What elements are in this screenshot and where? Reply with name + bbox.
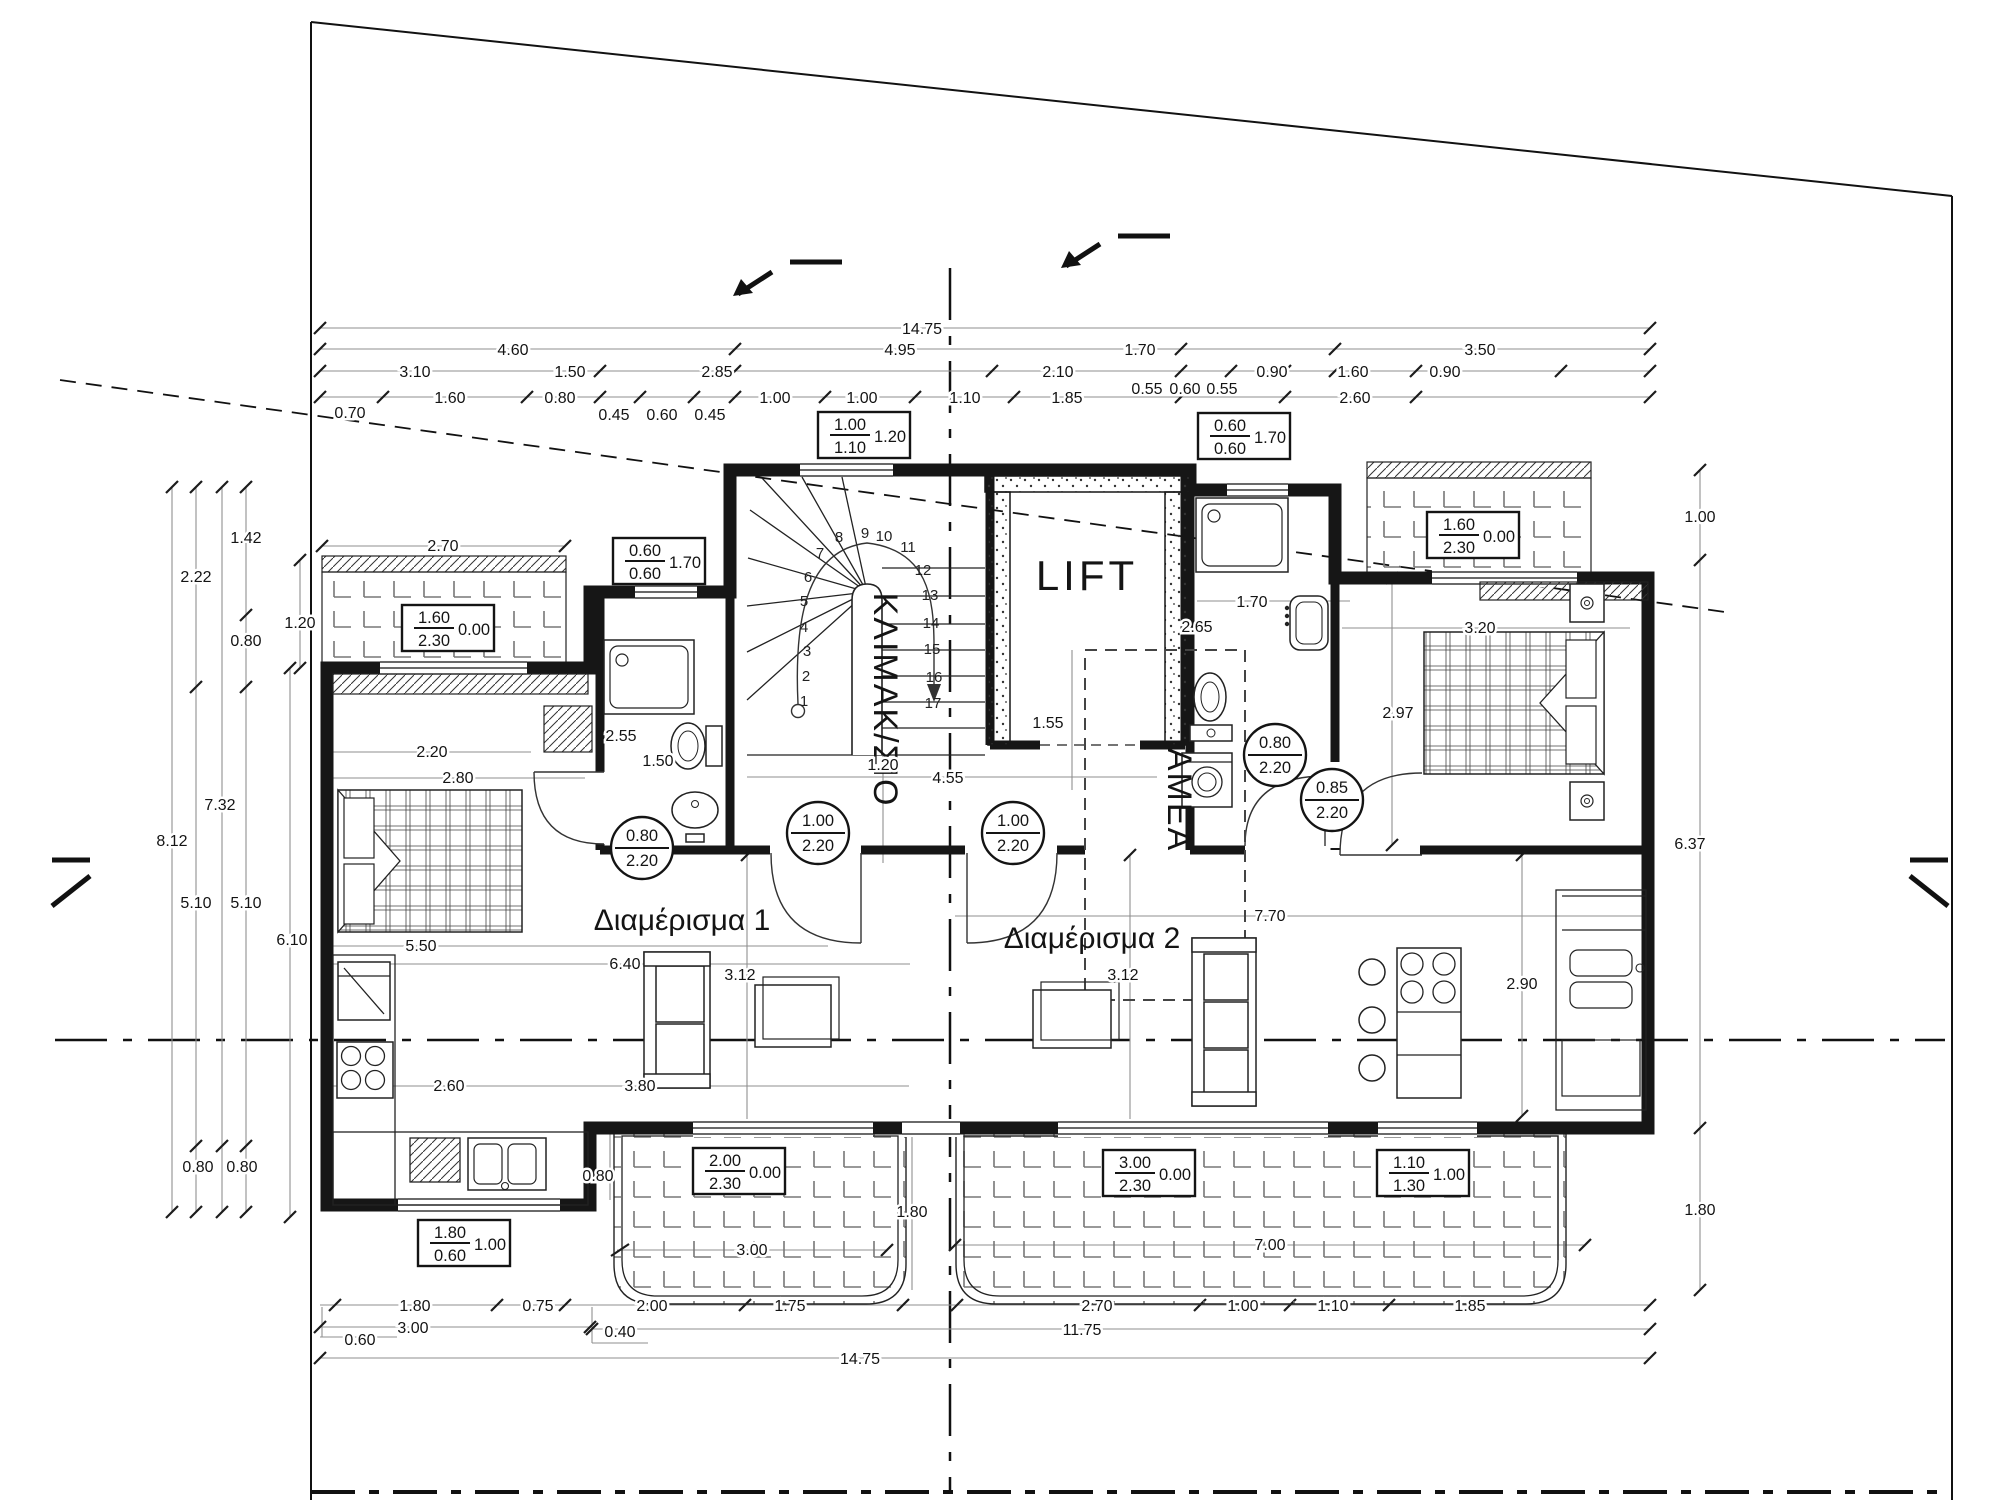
svg-text:5: 5 bbox=[800, 593, 808, 610]
dim-label: 7.70 bbox=[1254, 908, 1285, 925]
window-tag-bath1: 0.60 0.60 1.70 bbox=[613, 538, 705, 584]
bed1 bbox=[338, 790, 522, 932]
svg-text:13: 13 bbox=[922, 587, 939, 604]
kitchen-sink-icon bbox=[1570, 950, 1632, 976]
dim-label: 0.55 bbox=[1131, 381, 1162, 398]
svg-text:2.20: 2.20 bbox=[626, 852, 658, 870]
dim-label: 2.70 bbox=[427, 538, 458, 555]
door-tag-bath2: 0.80 2.20 bbox=[1244, 724, 1306, 786]
svg-text:0.00: 0.00 bbox=[1483, 528, 1515, 546]
floor-plan-drawing: 1.00 1.10 1.20 0.60 0.60 1.70 0.60 0.60 … bbox=[0, 0, 2000, 1500]
dim-label: 4.60 bbox=[497, 342, 528, 359]
door-tag-living2: 3.00 2.30 0.00 bbox=[1103, 1150, 1195, 1196]
shaft bbox=[544, 706, 592, 752]
window bbox=[1058, 1119, 1328, 1137]
floor-plan-page: 1.00 1.10 1.20 0.60 0.60 1.70 0.60 0.60 … bbox=[0, 0, 2000, 1500]
dim-label: 14.75 bbox=[902, 321, 942, 338]
svg-text:9: 9 bbox=[861, 525, 869, 542]
dim-label: 0.55 bbox=[1206, 381, 1237, 398]
dim-label: 8.12 bbox=[156, 833, 187, 850]
svg-text:2.20: 2.20 bbox=[1259, 759, 1291, 777]
dim-label: 1.75 bbox=[774, 1298, 805, 1315]
section-mark-icon bbox=[738, 262, 842, 294]
window bbox=[635, 583, 697, 601]
svg-text:11: 11 bbox=[900, 539, 916, 556]
section-mark-icon bbox=[1066, 236, 1170, 266]
door-apartment1 bbox=[771, 853, 861, 943]
toilet-tank bbox=[1190, 725, 1232, 741]
dim-label: 0.80 bbox=[182, 1159, 213, 1176]
svg-text:1.60: 1.60 bbox=[1443, 516, 1475, 534]
dim-label: 0.90 bbox=[1429, 364, 1460, 381]
svg-text:1.80: 1.80 bbox=[434, 1224, 466, 1242]
dim-label: 0.40 bbox=[604, 1324, 635, 1341]
dim-label: 2.60 bbox=[1339, 390, 1370, 407]
dim-label: 4.55 bbox=[932, 770, 963, 787]
sink-icon bbox=[672, 792, 718, 828]
coffee-table1 bbox=[755, 977, 839, 1047]
dim-label: 1.60 bbox=[434, 390, 465, 407]
dim-label: 6.40 bbox=[609, 956, 640, 973]
dim-label: 1.50 bbox=[642, 753, 673, 770]
dim-label: 2.80 bbox=[442, 770, 473, 787]
toilet-tank bbox=[706, 726, 722, 766]
stool-icon bbox=[1359, 1055, 1385, 1081]
dim-label: 1.00 bbox=[1684, 509, 1715, 526]
dim-label: 2.60 bbox=[433, 1078, 464, 1095]
window-tag-stair: 1.00 1.10 1.20 bbox=[818, 412, 910, 458]
svg-text:16: 16 bbox=[926, 669, 943, 686]
svg-text:7: 7 bbox=[816, 545, 824, 562]
dim-label: 2.55 bbox=[605, 728, 636, 745]
svg-text:0.60: 0.60 bbox=[629, 542, 661, 560]
dim-label: 3.00 bbox=[397, 1320, 428, 1337]
dim-label: 4.95 bbox=[884, 342, 915, 359]
svg-text:1.00: 1.00 bbox=[474, 1236, 506, 1254]
svg-text:1.70: 1.70 bbox=[669, 554, 701, 572]
door-bath1 bbox=[534, 772, 604, 844]
dim-label: 0.75 bbox=[522, 1298, 553, 1315]
dim-label: 2.65 bbox=[1181, 619, 1212, 636]
dim-label: 0.80 bbox=[582, 1168, 613, 1185]
dim-label: 1.10 bbox=[949, 390, 980, 407]
dim-labels-top: 14.75 4.60 4.95 1.70 3.50 3.10 1.50 2.85… bbox=[334, 321, 1495, 424]
dim-label: 14.75 bbox=[840, 1351, 880, 1368]
dim-label: 1.70 bbox=[1124, 342, 1155, 359]
door-tag-apt1: 1.00 2.20 bbox=[787, 802, 849, 864]
dim-label: 1.60 bbox=[1337, 364, 1368, 381]
door-tag-balcony2-top: 1.60 2.30 0.00 bbox=[1427, 512, 1519, 558]
svg-text:2.30: 2.30 bbox=[1119, 1177, 1151, 1195]
section-mark-icon bbox=[1910, 860, 1948, 906]
svg-text:1.00: 1.00 bbox=[834, 416, 866, 434]
dim-label: 3.50 bbox=[1464, 342, 1495, 359]
kitchen2 bbox=[1359, 890, 1646, 1110]
door-tag-living1: 2.00 2.30 0.00 bbox=[693, 1148, 785, 1194]
kitchen-island bbox=[1397, 948, 1461, 1098]
dim-label: 1.10 bbox=[1317, 1298, 1348, 1315]
bedroom1-closet bbox=[333, 674, 588, 694]
dim-label: 5.10 bbox=[230, 895, 261, 912]
svg-text:17: 17 bbox=[925, 695, 942, 712]
svg-text:0.00: 0.00 bbox=[458, 621, 490, 639]
svg-text:1.00: 1.00 bbox=[997, 812, 1029, 830]
dim-labels-left: 1.42 2.22 0.80 1.20 7.32 8.12 5.10 5.10 … bbox=[156, 530, 315, 1176]
dim-label: 11.75 bbox=[1063, 1322, 1102, 1339]
svg-text:0.00: 0.00 bbox=[749, 1164, 781, 1182]
svg-text:3: 3 bbox=[803, 643, 811, 660]
svg-text:3.00: 3.00 bbox=[1119, 1154, 1151, 1172]
dim-label: 1.20 bbox=[284, 615, 315, 632]
dim-label: 1.80 bbox=[1684, 1202, 1715, 1219]
dim-label: 3.10 bbox=[399, 364, 430, 381]
svg-text:0.60: 0.60 bbox=[1214, 440, 1246, 458]
dim-label: 2.20 bbox=[416, 744, 447, 761]
window bbox=[1227, 481, 1288, 499]
svg-text:0.00: 0.00 bbox=[1159, 1166, 1191, 1184]
svg-text:2.30: 2.30 bbox=[1443, 539, 1475, 557]
apartment2-label: Διαμέρισμα 2 bbox=[1004, 922, 1181, 955]
apartment1-label: Διαμέρισμα 1 bbox=[594, 904, 771, 937]
svg-text:2.20: 2.20 bbox=[997, 837, 1029, 855]
dim-label: 1.00 bbox=[759, 390, 790, 407]
svg-text:1.00: 1.00 bbox=[802, 812, 834, 830]
dim-label: 1.70 bbox=[1236, 594, 1267, 611]
dim-label: 0.70 bbox=[334, 405, 365, 422]
dim-label: 1.80 bbox=[399, 1298, 430, 1315]
svg-text:2.20: 2.20 bbox=[802, 837, 834, 855]
dim-label: 0.90 bbox=[1256, 364, 1287, 381]
dim-label: 1.85 bbox=[1454, 1298, 1485, 1315]
dim-label: 1.00 bbox=[846, 390, 877, 407]
nightstand bbox=[1570, 584, 1604, 622]
dim-label: 1.80 bbox=[896, 1204, 927, 1221]
svg-text:0.85: 0.85 bbox=[1316, 779, 1348, 797]
svg-text:6: 6 bbox=[804, 569, 812, 586]
svg-text:1.10: 1.10 bbox=[1393, 1154, 1425, 1172]
svg-text:0.60: 0.60 bbox=[629, 565, 661, 583]
svg-text:0.80: 0.80 bbox=[626, 827, 658, 845]
dim-label: 3.20 bbox=[1464, 620, 1495, 637]
dim-label: 2.10 bbox=[1042, 364, 1073, 381]
window-tag-kitchen1: 1.80 0.60 1.00 bbox=[418, 1220, 510, 1266]
door-tag-bath1: 0.80 2.20 bbox=[611, 817, 673, 879]
dim-label: 2.90 bbox=[1506, 976, 1537, 993]
window bbox=[1378, 1119, 1477, 1137]
svg-text:1.00: 1.00 bbox=[1433, 1166, 1465, 1184]
window bbox=[800, 461, 893, 479]
dim-label: 0.80 bbox=[226, 1159, 257, 1176]
lift-wall bbox=[988, 492, 1010, 745]
balcony-bottom-right bbox=[956, 1128, 1566, 1304]
dim-label: 1.42 bbox=[230, 530, 261, 547]
dim-label: 0.45 bbox=[598, 407, 629, 424]
dim-label: 0.45 bbox=[694, 407, 725, 424]
svg-text:1.70: 1.70 bbox=[1254, 429, 1286, 447]
dim-label: 0.80 bbox=[230, 633, 261, 650]
svg-text:1: 1 bbox=[800, 693, 808, 710]
svg-text:2.20: 2.20 bbox=[1316, 804, 1348, 822]
dim-label: 6.10 bbox=[276, 932, 307, 949]
svg-text:1.30: 1.30 bbox=[1393, 1177, 1425, 1195]
dim-label: 3.80 bbox=[624, 1078, 655, 1095]
door-tag-apt2: 1.00 2.20 bbox=[982, 802, 1044, 864]
svg-text:14: 14 bbox=[923, 615, 940, 632]
sofa1 bbox=[644, 952, 710, 1088]
stairwell-label: ΚΛΙΜΑΚ/ΣΙΟ bbox=[866, 593, 904, 808]
nightstand bbox=[1570, 782, 1604, 820]
svg-text:4: 4 bbox=[800, 619, 808, 636]
dim-label: 7.00 bbox=[1254, 1237, 1285, 1254]
sofa2 bbox=[1192, 938, 1256, 1106]
svg-text:0.60: 0.60 bbox=[1214, 417, 1246, 435]
window-tag-kitchen2: 1.10 1.30 1.00 bbox=[1377, 1150, 1469, 1196]
stool-icon bbox=[1359, 1007, 1385, 1033]
oven-icon bbox=[410, 1138, 460, 1182]
bedroom2-closet bbox=[1480, 582, 1648, 600]
dim-label: 1.00 bbox=[1227, 1298, 1258, 1315]
svg-text:2.00: 2.00 bbox=[709, 1152, 741, 1170]
svg-text:10: 10 bbox=[876, 528, 893, 545]
amea-label: ΑΜΕΑ bbox=[1160, 748, 1198, 852]
dim-label: 2.85 bbox=[701, 364, 732, 381]
dim-label: 5.10 bbox=[180, 895, 211, 912]
bed2 bbox=[1424, 584, 1604, 820]
dim-label: 1.55 bbox=[1032, 715, 1063, 732]
svg-text:8: 8 bbox=[835, 529, 843, 546]
door-tag-balcony1-top: 1.60 2.30 0.00 bbox=[402, 605, 494, 651]
dim-label: 7.32 bbox=[204, 797, 235, 814]
window-tag-bath2: 0.60 0.60 1.70 bbox=[1198, 413, 1290, 459]
entrance-opening bbox=[902, 1119, 960, 1137]
dim-label: 5.50 bbox=[405, 938, 436, 955]
dim-label: 1.85 bbox=[1051, 390, 1082, 407]
dim-label: 3.00 bbox=[736, 1242, 767, 1259]
dim-label: 2.22 bbox=[180, 569, 211, 586]
toilet-icon bbox=[671, 723, 705, 769]
dim-label: 0.60 bbox=[1169, 381, 1200, 398]
coffee-table2 bbox=[1033, 982, 1119, 1048]
dim-label: 0.60 bbox=[344, 1332, 375, 1349]
svg-text:2: 2 bbox=[802, 668, 810, 685]
dim-label: 2.97 bbox=[1382, 705, 1413, 722]
toilet-icon bbox=[1194, 673, 1226, 721]
svg-text:2.30: 2.30 bbox=[418, 632, 450, 650]
dim-labels-right: 1.00 6.37 1.80 bbox=[1674, 509, 1715, 1219]
svg-text:12: 12 bbox=[915, 562, 932, 579]
svg-text:1.20: 1.20 bbox=[874, 428, 906, 446]
section-mark-icon bbox=[52, 860, 90, 906]
dim-label: 2.70 bbox=[1081, 1298, 1112, 1315]
dim-label: 0.60 bbox=[646, 407, 677, 424]
lift-wall bbox=[985, 476, 1190, 492]
dim-label: 3.12 bbox=[724, 967, 755, 984]
svg-text:0.80: 0.80 bbox=[1259, 734, 1291, 752]
door-tag-bedroom2: 0.85 2.20 bbox=[1301, 769, 1363, 831]
stool-icon bbox=[1359, 959, 1385, 985]
svg-text:1.60: 1.60 bbox=[418, 609, 450, 627]
dim-label: 3.12 bbox=[1107, 967, 1138, 984]
stove-icon bbox=[337, 1042, 393, 1098]
lift-label: LIFT bbox=[1036, 552, 1138, 599]
svg-text:15: 15 bbox=[924, 641, 941, 658]
svg-text:0.60: 0.60 bbox=[434, 1247, 466, 1265]
dim-label: 1.50 bbox=[554, 364, 585, 381]
dim-label: 6.37 bbox=[1674, 836, 1705, 853]
svg-text:1.10: 1.10 bbox=[834, 439, 866, 457]
dim-label: 0.80 bbox=[544, 390, 575, 407]
dim-label: 2.00 bbox=[636, 1298, 667, 1315]
svg-text:2.30: 2.30 bbox=[709, 1175, 741, 1193]
dim-label: 1.20 bbox=[867, 757, 898, 774]
window bbox=[693, 1119, 873, 1137]
